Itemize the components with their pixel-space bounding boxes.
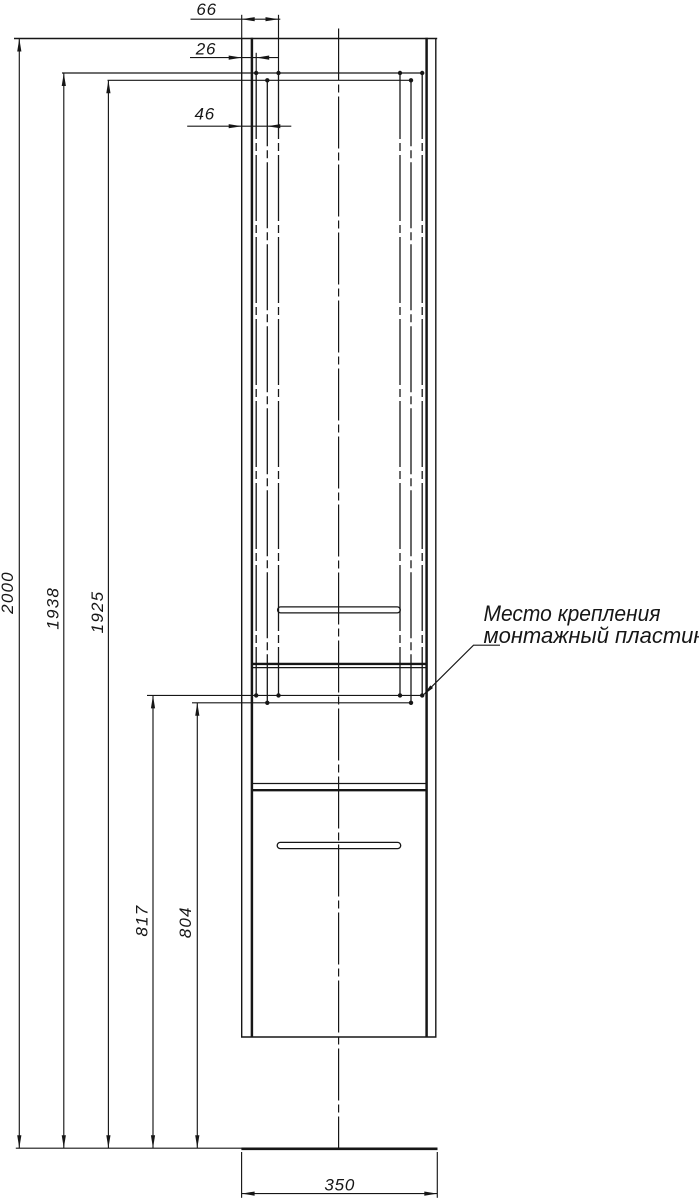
svg-text:350: 350 <box>324 1176 355 1195</box>
svg-text:46: 46 <box>195 105 216 124</box>
svg-text:817: 817 <box>133 905 152 937</box>
svg-text:1925: 1925 <box>88 591 107 634</box>
svg-text:2000: 2000 <box>0 571 17 615</box>
svg-text:26: 26 <box>195 39 217 58</box>
svg-text:66: 66 <box>196 0 217 19</box>
svg-text:монтажный пластин: монтажный пластин <box>484 623 699 648</box>
svg-text:804: 804 <box>176 906 195 938</box>
svg-text:1938: 1938 <box>44 587 63 630</box>
